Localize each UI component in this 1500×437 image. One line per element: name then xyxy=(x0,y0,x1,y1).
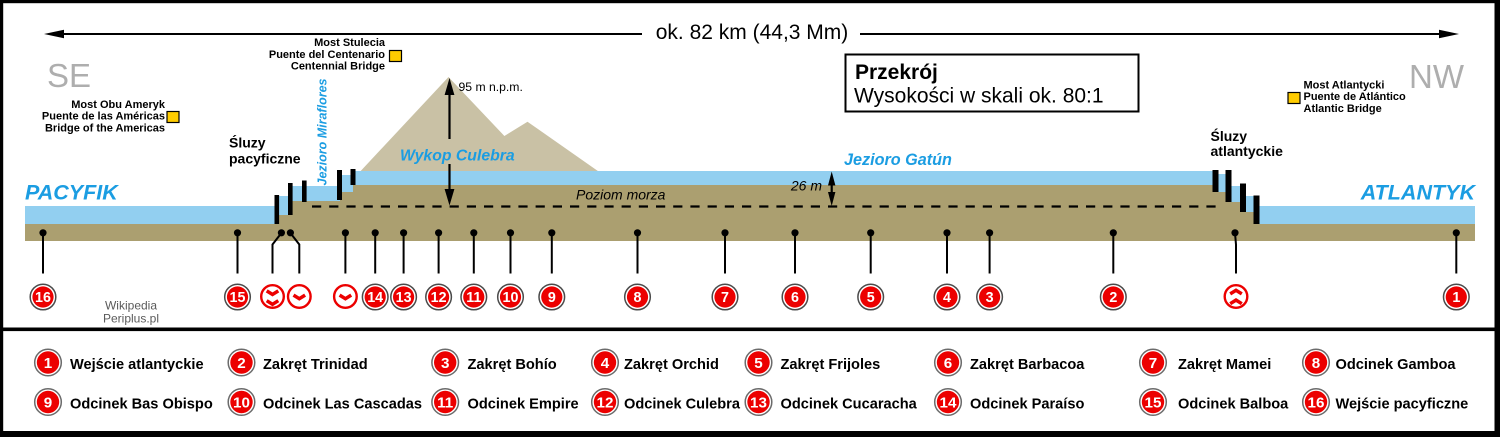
svg-text:Odcinek Empire: Odcinek Empire xyxy=(468,397,579,413)
svg-text:15: 15 xyxy=(1145,395,1162,412)
svg-text:12: 12 xyxy=(431,290,447,306)
svg-text:95 m n.p.m.: 95 m n.p.m. xyxy=(459,80,523,94)
svg-text:7: 7 xyxy=(1149,355,1157,372)
svg-text:12: 12 xyxy=(597,395,614,412)
svg-text:Wikipedia: Wikipedia xyxy=(105,299,157,313)
svg-text:Odcinek Culebra: Odcinek Culebra xyxy=(624,397,741,413)
svg-text:Centennial Bridge: Centennial Bridge xyxy=(291,61,385,73)
svg-text:Most Obu Ameryk: Most Obu Ameryk xyxy=(71,99,166,111)
svg-text:Odcinek Cucaracha: Odcinek Cucaracha xyxy=(781,397,918,413)
svg-text:2: 2 xyxy=(237,355,245,372)
svg-text:Zakręt Trinidad: Zakręt Trinidad xyxy=(263,357,368,373)
svg-text:Jezioro Gatún: Jezioro Gatún xyxy=(844,151,952,169)
svg-text:26 m: 26 m xyxy=(790,178,822,194)
svg-text:16: 16 xyxy=(35,290,51,306)
svg-text:13: 13 xyxy=(396,290,412,306)
svg-text:PACYFIK: PACYFIK xyxy=(25,181,119,205)
svg-text:Odcinek Balboa: Odcinek Balboa xyxy=(1178,397,1289,413)
svg-text:8: 8 xyxy=(1312,355,1320,372)
svg-text:11: 11 xyxy=(466,290,481,306)
svg-text:Atlantic Bridge: Atlantic Bridge xyxy=(1304,103,1382,115)
svg-text:Przekrój: Przekrój xyxy=(855,61,938,84)
svg-text:4: 4 xyxy=(601,355,610,372)
svg-text:Odcinek Paraíso: Odcinek Paraíso xyxy=(970,397,1084,413)
svg-text:Zakręt Frijoles: Zakręt Frijoles xyxy=(781,357,881,373)
svg-text:Poziom morza: Poziom morza xyxy=(576,187,666,203)
svg-text:ATLANTYK: ATLANTYK xyxy=(1360,181,1477,205)
svg-text:15: 15 xyxy=(230,290,246,306)
svg-text:Zakręt Orchid: Zakręt Orchid xyxy=(624,357,719,373)
svg-text:10: 10 xyxy=(233,395,250,412)
svg-text:3: 3 xyxy=(986,290,994,306)
svg-text:8: 8 xyxy=(634,290,642,306)
svg-text:11: 11 xyxy=(437,395,454,412)
svg-text:Zakręt Barbacoa: Zakręt Barbacoa xyxy=(970,357,1085,373)
svg-text:16: 16 xyxy=(1308,395,1325,412)
svg-text:Śluzy: Śluzy xyxy=(1211,127,1248,144)
svg-text:3: 3 xyxy=(441,355,449,372)
svg-text:Puente de Atlántico: Puente de Atlántico xyxy=(1304,91,1407,103)
svg-text:Bridge of the Americas: Bridge of the Americas xyxy=(45,122,165,134)
svg-text:5: 5 xyxy=(754,355,763,372)
svg-text:7: 7 xyxy=(721,290,729,306)
svg-text:Wykop Culebra: Wykop Culebra xyxy=(400,148,515,165)
svg-text:Puente de las Américas: Puente de las Américas xyxy=(42,111,165,123)
svg-text:4: 4 xyxy=(943,290,951,306)
svg-text:Puente del Centenario: Puente del Centenario xyxy=(269,49,385,61)
svg-text:Odcinek Bas Obispo: Odcinek Bas Obispo xyxy=(70,397,213,413)
svg-text:6: 6 xyxy=(944,355,952,372)
svg-text:6: 6 xyxy=(791,290,799,306)
svg-text:SE: SE xyxy=(47,57,91,94)
svg-text:Wejście atlantyckie: Wejście atlantyckie xyxy=(70,357,204,373)
svg-text:ok. 82 km (44,3 Mm): ok. 82 km (44,3 Mm) xyxy=(656,21,849,44)
svg-text:14: 14 xyxy=(940,395,957,412)
svg-text:Śluzy: Śluzy xyxy=(229,133,266,150)
svg-text:pacyficzne: pacyficzne xyxy=(229,151,301,167)
svg-text:2: 2 xyxy=(1109,290,1117,306)
svg-text:atlantyckie: atlantyckie xyxy=(1211,143,1284,159)
svg-text:Most Stulecia: Most Stulecia xyxy=(314,37,386,49)
svg-text:Zakręt Mamei: Zakręt Mamei xyxy=(1178,357,1271,373)
svg-text:Periplus.pl: Periplus.pl xyxy=(103,312,159,326)
svg-text:Wejście pacyficzne: Wejście pacyficzne xyxy=(1336,397,1469,413)
svg-text:Most Atlantycki: Most Atlantycki xyxy=(1304,80,1385,92)
svg-text:Odcinek Las Cascadas: Odcinek Las Cascadas xyxy=(263,397,422,413)
svg-text:14: 14 xyxy=(367,290,383,306)
svg-text:9: 9 xyxy=(44,395,52,412)
svg-text:9: 9 xyxy=(548,290,556,306)
svg-text:Wysokości w skali ok. 80:1: Wysokości w skali ok. 80:1 xyxy=(854,85,1104,108)
svg-text:NW: NW xyxy=(1409,58,1465,95)
svg-text:1: 1 xyxy=(44,355,53,372)
svg-text:Jezioro Miraflores: Jezioro Miraflores xyxy=(316,78,330,185)
svg-text:Odcinek Gamboa: Odcinek Gamboa xyxy=(1336,357,1457,373)
svg-text:5: 5 xyxy=(867,290,875,306)
svg-text:Zakręt Bohío: Zakręt Bohío xyxy=(468,357,557,373)
svg-text:10: 10 xyxy=(503,290,519,306)
svg-text:1: 1 xyxy=(1452,290,1460,306)
svg-text:13: 13 xyxy=(750,395,767,412)
